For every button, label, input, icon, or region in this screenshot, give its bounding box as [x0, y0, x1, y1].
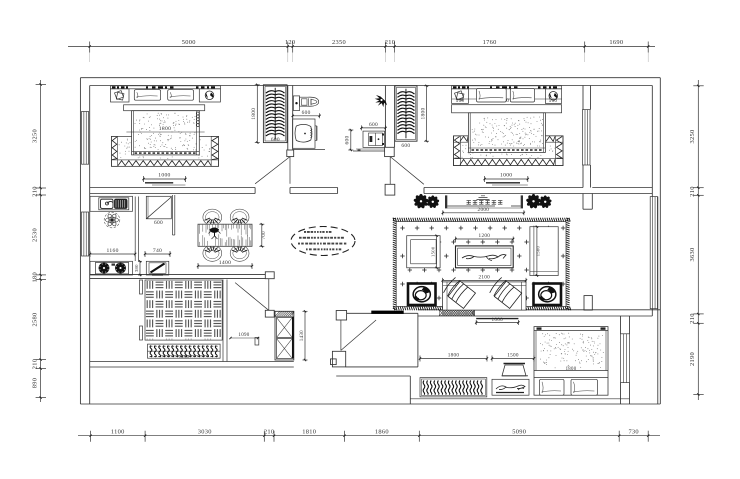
svg-text:1400: 1400 [219, 260, 231, 266]
svg-text:600: 600 [401, 143, 410, 149]
svg-text:600: 600 [302, 110, 311, 116]
svg-text:1160: 1160 [107, 248, 119, 254]
svg-text:600: 600 [345, 136, 351, 145]
svg-text:700: 700 [262, 231, 267, 240]
svg-text:210: 210 [385, 39, 396, 46]
svg-text:210: 210 [689, 313, 696, 324]
svg-text:210: 210 [689, 186, 696, 197]
svg-text:2190: 2190 [689, 352, 696, 366]
svg-text:1090: 1090 [238, 333, 249, 338]
svg-text:1430: 1430 [300, 330, 305, 341]
svg-text:2530: 2530 [31, 228, 38, 242]
svg-text:500: 500 [456, 99, 465, 104]
svg-text:180: 180 [31, 272, 38, 283]
svg-text:2350: 2350 [332, 39, 346, 46]
svg-text:740: 740 [153, 248, 162, 254]
svg-text:210: 210 [31, 186, 38, 197]
svg-text:1100: 1100 [111, 428, 125, 435]
svg-text:3030: 3030 [198, 428, 212, 435]
svg-text:380: 380 [134, 264, 139, 272]
svg-text:2100: 2100 [479, 275, 491, 281]
svg-text:1800: 1800 [420, 108, 426, 120]
svg-text:1500: 1500 [507, 353, 519, 359]
svg-text:1800: 1800 [448, 353, 460, 359]
svg-text:210: 210 [264, 428, 275, 435]
svg-text:1800: 1800 [566, 367, 577, 372]
svg-text:5090: 5090 [512, 428, 526, 435]
svg-text:120: 120 [285, 39, 296, 46]
svg-text:2000: 2000 [478, 207, 490, 213]
svg-text:1000: 1000 [500, 173, 512, 179]
svg-text:890: 890 [31, 378, 38, 389]
svg-text:1500: 1500 [431, 246, 436, 257]
svg-text:1230: 1230 [179, 354, 190, 359]
svg-text:3250: 3250 [689, 130, 696, 144]
svg-text:1860: 1860 [375, 428, 389, 435]
svg-text:600: 600 [271, 137, 280, 143]
svg-text:1800: 1800 [251, 108, 257, 120]
svg-text:2580: 2580 [31, 313, 38, 327]
svg-text:3250: 3250 [31, 129, 38, 143]
svg-text:1800: 1800 [159, 126, 171, 132]
svg-text:1000: 1000 [158, 173, 170, 179]
svg-text:1200: 1200 [479, 233, 491, 239]
svg-text:1810: 1810 [302, 428, 316, 435]
svg-text:5000: 5000 [182, 39, 196, 46]
svg-text:500: 500 [549, 99, 558, 104]
svg-text:1760: 1760 [483, 39, 497, 46]
svg-text:600: 600 [369, 122, 378, 128]
svg-text:210: 210 [31, 359, 38, 370]
svg-text:1690: 1690 [609, 39, 623, 46]
svg-text:1500: 1500 [536, 246, 541, 257]
svg-text:3630: 3630 [689, 248, 696, 262]
svg-text:600: 600 [154, 220, 163, 226]
svg-text:730: 730 [628, 428, 639, 435]
svg-text:1000: 1000 [492, 317, 504, 323]
